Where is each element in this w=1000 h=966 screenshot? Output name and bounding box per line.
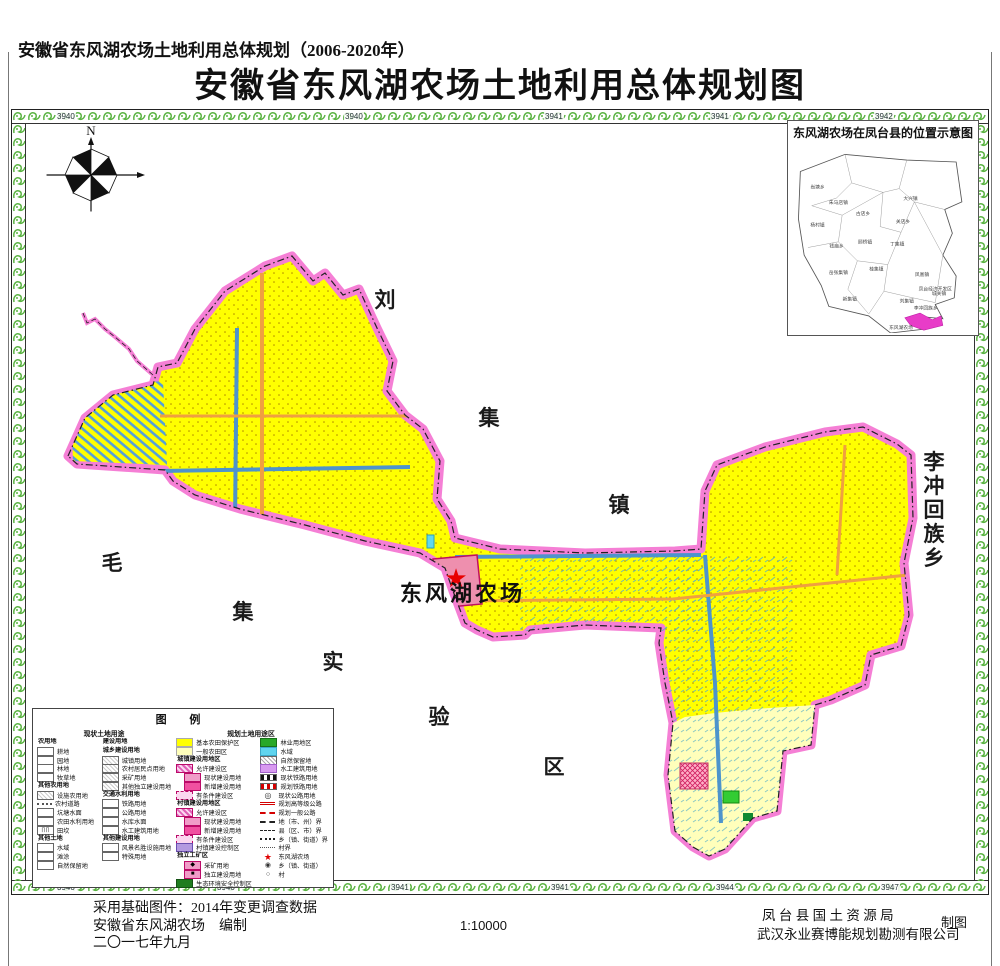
- district-label: 镇: [609, 493, 630, 517]
- legend-swatch-wb: [102, 799, 119, 808]
- legend-item: 自然保留地: [36, 861, 101, 870]
- legend-item-label: 基本农田保护区: [196, 738, 239, 747]
- legend-swatch-wb: [37, 808, 54, 817]
- legend-item: 牧草地: [36, 773, 101, 782]
- legend-swatch-py: [176, 747, 193, 756]
- sheet-edge-left: [8, 52, 9, 966]
- legend-item: 规划高等级公路: [259, 800, 330, 809]
- legend-swatch-b2: [260, 830, 275, 831]
- sheet-edge-right: [991, 52, 992, 966]
- legend-item: 设施农用地: [36, 791, 101, 800]
- district-label: 李: [923, 450, 946, 474]
- compass-rose: N: [47, 123, 145, 211]
- legend-item-label: 规划铁路用地: [280, 782, 317, 791]
- legend-swatch-yl: [176, 738, 193, 747]
- footer-agency: 凤 台 县 国 土 资 源 局: [762, 904, 894, 924]
- legend-item-label: 林地: [57, 764, 69, 773]
- grid-number: 3940: [344, 112, 364, 121]
- legend-swatch-md: [176, 835, 193, 844]
- legend-item: 县（区、市）界: [259, 826, 330, 835]
- legend-swatch-wb: [102, 852, 119, 861]
- legend-swatch-hn: ◎: [260, 792, 275, 799]
- legend-header-current: 现状土地用途: [33, 728, 175, 738]
- legend-item-label: 水域: [280, 747, 292, 756]
- legend-item-label: 农村道路: [55, 799, 80, 808]
- farm-name-label: 东风湖农场: [400, 581, 525, 606]
- legend-swatch-wb: [37, 843, 54, 852]
- footer-compiler-line: 安徽省东风湖农场 编制: [93, 918, 317, 936]
- legend-swatch-cd: ◉: [260, 862, 275, 869]
- legend-swatch-tk: ∏∏: [37, 826, 54, 835]
- legend-swatch-wb: [37, 764, 54, 773]
- legend-item: 林地: [36, 764, 101, 773]
- legend-item-label: 一般农田区: [196, 747, 227, 756]
- legend-item-label: 现状建设用地: [204, 773, 241, 782]
- legend-item-label: 有条件建设区: [196, 835, 233, 844]
- legend-item: ◉乡（镇、街道）: [259, 861, 330, 870]
- legend-group-header: 城镇建设用地区: [177, 756, 259, 765]
- legend-item: 允许建设区: [175, 764, 259, 773]
- grid-number: 3941: [710, 112, 730, 121]
- legend-item: 公路用地: [101, 808, 175, 817]
- legend-swatch-wb: [102, 817, 119, 826]
- legend-item-label: 乡（镇、街道）: [278, 861, 321, 870]
- legend-item-label: 林业用地区: [280, 738, 311, 747]
- legend-item: 一般农田区: [175, 747, 259, 756]
- grid-number: 3941: [550, 883, 570, 892]
- footer-credit: 制图: [941, 912, 967, 931]
- district-label: 乡: [924, 546, 945, 570]
- legend-item: 有条件建设区: [175, 835, 259, 844]
- legend-item: 特殊用地: [101, 852, 175, 861]
- legend-item: 基本农田保护区: [175, 738, 259, 747]
- legend-item: 规划铁路用地: [259, 782, 330, 791]
- legend-item-label: 其他独立建设用地: [122, 782, 172, 791]
- legend-item-label: 新增建设用地: [204, 782, 241, 791]
- district-label: 刘: [375, 288, 396, 312]
- footer-date-line: 二〇一七年九月: [93, 935, 317, 953]
- legend-item-label: 风景名胜设施用地: [122, 843, 172, 852]
- legend-swatch-wb: [102, 808, 119, 817]
- footer-source-line: 采用基础图件：2014年变更调查数据: [93, 900, 317, 918]
- legend-swatch-b4: [260, 847, 275, 848]
- legend-item-label: 采矿用地: [122, 773, 147, 782]
- legend-swatch-gr: [260, 738, 277, 747]
- district-label: 回: [924, 498, 945, 522]
- legend-swatch-wh: [102, 764, 119, 773]
- legend-item: ○村: [259, 870, 330, 879]
- legend-item: 生态环境安全控制区: [175, 879, 259, 888]
- legend-swatch-wb: [37, 817, 54, 826]
- legend-swatch-wb: [102, 843, 119, 852]
- grid-number: 3941: [390, 883, 410, 892]
- legend-item-label: 水工建筑用地: [280, 764, 317, 773]
- legend-item: 新增建设用地: [183, 782, 259, 791]
- legend-column-4: 林业用地区水域自然保留地水工建筑用地现状铁路用地规划铁路用地◎现状公路用地规划高…: [259, 738, 330, 888]
- legend-item: 城镇用地: [101, 756, 175, 765]
- grid-number: 3940: [56, 112, 76, 121]
- legend-group-header: 其他建设用地: [103, 835, 175, 844]
- legend-group-header: 村镇建设用地区: [177, 800, 259, 809]
- legend-item: ∏∏田坎: [36, 826, 101, 835]
- ornament-border-left: [12, 123, 26, 881]
- grid-number: 3941: [544, 112, 564, 121]
- legend-swatch-p1: [184, 817, 201, 826]
- legend-item-label: 特殊用地: [122, 852, 147, 861]
- legend-item-label: 村界: [278, 843, 290, 852]
- legend-item-label: 现状公路用地: [278, 791, 315, 800]
- legend-item-label: 铁路用地: [122, 799, 147, 808]
- legend-item: 允许建设区: [175, 808, 259, 817]
- legend-swatch-p2: [184, 782, 201, 791]
- legend-item-label: 园地: [57, 756, 69, 765]
- legend-item-label: 水库水面: [122, 817, 147, 826]
- legend-swatch-p2: [184, 826, 201, 835]
- legend-item: 水工建筑用地: [101, 826, 175, 835]
- legend-item: 地（市、州）界: [259, 817, 330, 826]
- legend-swatch-mh: [176, 808, 193, 817]
- legend-item-label: 现状铁路用地: [280, 773, 317, 782]
- page-title: 安徽省东风湖农场土地利用总体规划图: [0, 58, 1000, 107]
- legend-item: 其他独立建设用地: [101, 782, 175, 791]
- legend-item: 现状铁路用地: [259, 773, 330, 782]
- legend-item-label: 东风湖农场: [278, 852, 309, 861]
- map-sheet: { "titles": { "subtitle": "安徽省东风湖农场土地利用总…: [0, 0, 1000, 966]
- grid-number: 3947: [880, 883, 900, 892]
- legend-item: 铁路用地: [101, 800, 175, 809]
- legend-swatch-wh: [102, 773, 119, 782]
- legend-item-label: 自然保留地: [57, 861, 88, 870]
- legend-swatch-wb: [37, 747, 54, 756]
- legend-title: 图 例: [33, 711, 333, 727]
- legend-swatch-wb: [37, 852, 54, 861]
- legend-item-label: 坑塘水面: [57, 808, 82, 817]
- legend-item: 村界: [259, 844, 330, 853]
- legend-group-header: 独立工矿区: [177, 852, 259, 861]
- legend-item-label: 规划一般公路: [278, 808, 315, 817]
- legend-item: 园地: [36, 756, 101, 765]
- legend-swatch-b1: [260, 821, 275, 823]
- legend-item: 新增建设用地: [183, 826, 259, 835]
- legend-swatch-m1: ◆: [184, 861, 201, 870]
- legend-swatch-hg: [260, 812, 275, 814]
- legend-swatch-wb: [102, 826, 119, 835]
- legend-item-label: 耕地: [57, 747, 69, 756]
- legend-item-label: 规划高等级公路: [278, 799, 321, 808]
- district-label: 验: [429, 705, 450, 729]
- legend-item: 林业用地区: [259, 738, 330, 747]
- legend-swatch-hh: [260, 802, 275, 805]
- inset-title: 东风湖农场在凤台县的位置示意图: [788, 124, 978, 141]
- legend-item: 耕地: [36, 747, 101, 756]
- legend-header-planned: 规划土地用途区: [175, 728, 327, 738]
- map-scale: 1:10000: [460, 918, 507, 933]
- green-parcel: [723, 791, 739, 803]
- legend-item: 农村居民点用地: [101, 764, 175, 773]
- legend-item: 有条件建设区: [175, 791, 259, 800]
- legend-item-label: 村: [278, 870, 284, 879]
- legend-group-header: 交通水利用地: [103, 791, 175, 800]
- district-label: 集: [232, 600, 255, 624]
- legend-item-label: 乡（镇、街道）界: [278, 835, 328, 844]
- legend-item-label: 独立建设用地: [204, 870, 241, 879]
- footer-source-block: 采用基础图件：2014年变更调查数据 安徽省东风湖农场 编制 二〇一七年九月: [93, 900, 317, 953]
- legend-item-label: 新增建设用地: [204, 826, 241, 835]
- footer-surveyor: 武汉永业赛博能规划勘测有限公司: [757, 923, 960, 943]
- legend-item: ★东风湖农场: [259, 852, 330, 861]
- legend-item-label: 城镇用地: [122, 756, 147, 765]
- legend-item: 水域: [36, 844, 101, 853]
- legend-item-label: 公路用地: [122, 808, 147, 817]
- district-label: 区: [544, 755, 565, 779]
- legend-item: 乡（镇、街道）界: [259, 835, 330, 844]
- district-label: 族: [924, 522, 946, 546]
- legend-item-label: 滩涂: [57, 852, 69, 861]
- legend-swatch-m2: ■: [184, 870, 201, 879]
- legend-swatch-ec: [176, 879, 193, 888]
- legend-item: 水库水面: [101, 817, 175, 826]
- legend-headers: 现状土地用途 规划土地用途区: [33, 728, 333, 738]
- district-label: 冲: [924, 474, 945, 498]
- legend-item: ◎现状公路用地: [259, 791, 330, 800]
- legend-column-3: 基本农田保护区一般农田区城镇建设用地区允许建设区现状建设用地新增建设用地有条件建…: [175, 738, 259, 888]
- inset-locator-map: 东风湖农场在凤台县的位置示意图 尚塘乡朱马店镇大兴镇古店乡杨村镇关店乡钱庙乡顾桥…: [787, 120, 979, 336]
- legend-item-label: 牧草地: [57, 773, 76, 782]
- boundary-appendix: [83, 313, 153, 375]
- legend-item-label: 允许建设区: [196, 764, 227, 773]
- legend-group-header: 城乡建设用地: [103, 747, 175, 756]
- grid-number: 3944: [715, 883, 735, 892]
- legend-item: ■独立建设用地: [183, 870, 259, 879]
- legend-group-header: 其他农用地: [38, 782, 101, 791]
- legend-swatch-rp: [260, 783, 277, 790]
- legend-swatch-wb: [37, 756, 54, 765]
- legend-item: 滩涂: [36, 852, 101, 861]
- legend-item-label: 水域: [57, 843, 69, 852]
- legend-item: 采矿用地: [101, 773, 175, 782]
- legend-group-header: 农用地: [38, 738, 101, 747]
- legend-swatch-wb: [37, 773, 54, 782]
- legend-item: 水工建筑用地: [259, 764, 330, 773]
- legend-item-label: 农田水利用地: [57, 817, 94, 826]
- legend-swatch-wh: [102, 782, 119, 791]
- legend-item-label: 允许建设区: [196, 808, 227, 817]
- legend-item-label: 采矿用地: [204, 861, 229, 870]
- legend-item: 水域: [259, 747, 330, 756]
- legend-swatch-pu: [260, 764, 277, 773]
- inset-canvas: 尚塘乡朱马店镇大兴镇古店乡杨村镇关店乡钱庙乡顾桥镇丁集镇岳张集镇桂集镇凤凰镇新集…: [792, 143, 974, 333]
- legend-column-2: 建设用地城乡建设用地城镇用地农村居民点用地采矿用地其他独立建设用地交通水利用地铁…: [101, 738, 175, 888]
- legend-item-label: 水工建筑用地: [122, 826, 159, 835]
- water-parcel: [427, 535, 434, 548]
- legend-item-label: 设施农用地: [57, 791, 88, 800]
- legend-swatch-wh: [37, 791, 54, 800]
- legend-item-label: 地（市、州）界: [278, 817, 321, 826]
- legend-item: 规划一般公路: [259, 808, 330, 817]
- legend-swatch-gh: [260, 756, 277, 765]
- legend-item: 农村道路: [36, 800, 101, 809]
- district-label: 集: [478, 406, 501, 430]
- legend-swatch-md: [176, 791, 193, 800]
- legend-item-label: 生态环境安全控制区: [196, 879, 252, 888]
- legend-swatch-b3: [260, 838, 275, 840]
- legend-item: 风景名胜设施用地: [101, 844, 175, 853]
- district-label: 实: [323, 650, 344, 674]
- legend: 图 例 现状土地用途 规划土地用途区 农用地耕地园地林地牧草地其他农用地设施农用…: [32, 708, 334, 888]
- legend-item-label: 农村居民点用地: [122, 764, 165, 773]
- legend-group-header: 其他土地: [38, 835, 101, 844]
- legend-swatch-st: ★: [260, 853, 275, 860]
- legend-item-label: 自然保留地: [280, 756, 311, 765]
- legend-swatch-wb: [37, 861, 54, 870]
- legend-item: 农田水利用地: [36, 817, 101, 826]
- legend-item: 现状建设用地: [183, 817, 259, 826]
- legend-group-header: 建设用地: [103, 738, 175, 747]
- legend-swatch-rn: [260, 774, 277, 781]
- legend-item: 现状建设用地: [183, 773, 259, 782]
- legend-swatch-ci: ○: [260, 871, 275, 878]
- legend-item-label: 有条件建设区: [196, 791, 233, 800]
- legend-swatch-ldot: [37, 803, 52, 805]
- legend-swatch-cy: [260, 747, 277, 756]
- legend-item: ◆采矿用地: [183, 861, 259, 870]
- legend-item-label: 田坎: [57, 826, 69, 835]
- legend-column-1: 农用地耕地园地林地牧草地其他农用地设施农用地农村道路坑塘水面农田水利用地∏∏田坎…: [36, 738, 101, 888]
- legend-item-label: 现状建设用地: [204, 817, 241, 826]
- legend-item-label: 县（区、市）界: [278, 826, 321, 835]
- legend-swatch-wh: [102, 756, 119, 765]
- legend-item: 坑塘水面: [36, 808, 101, 817]
- compass-north-label: N: [86, 123, 96, 138]
- legend-item: 自然保留地: [259, 756, 330, 765]
- legend-swatch-p1: [184, 773, 201, 782]
- planned-construction-parcel: [680, 763, 708, 789]
- district-label: 毛: [102, 551, 123, 575]
- canal-line: [455, 555, 701, 557]
- legend-swatch-mh: [176, 764, 193, 773]
- canal-line: [235, 328, 237, 523]
